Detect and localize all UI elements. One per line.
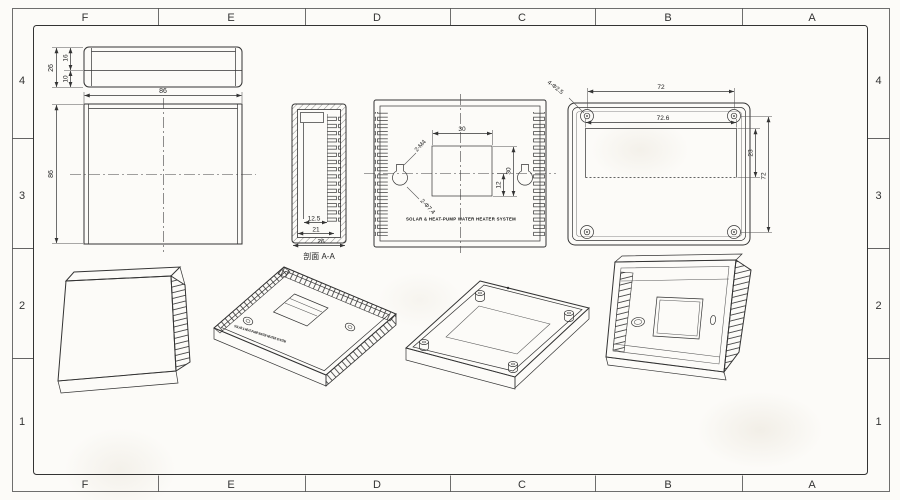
iso2-thickness-se [326,314,396,386]
iso1-vent-side [171,276,190,371]
grid-col-label: E [227,479,234,491]
dim-window-offset: 12 [496,181,503,189]
outer-border [13,9,890,492]
iso4-keyhole-inner [634,319,642,325]
grid-col-label: F [82,12,89,24]
grid-col-label: D [373,479,381,491]
grid-ticks-right [868,139,890,359]
iso1-bottom-skirt [58,371,178,393]
grid-ticks-top [159,9,743,26]
base-recess [586,129,737,178]
iso4-keyhole [631,317,645,328]
drawing-sheet: F E D C B A F E D C B A 4 3 2 1 4 3 2 1 … [0,0,900,500]
back-vent-fins-left [375,112,388,236]
grid-row-label: 3 [875,190,881,202]
grid-ticks-left [13,139,34,359]
grid-col-label: A [808,12,816,24]
iso-view-base-tray [406,281,589,389]
iso2-keyhole-right [344,322,356,333]
brand-text: SOLAR & HEAT-PUMP WATER HEATER SYSTEM [406,217,516,222]
base-view: 72 72.6 4-Φ2.5 23 72 [546,80,772,245]
dim-front-height: 86 [48,170,55,178]
grid-row-label: 1 [875,416,881,428]
grid-col-label: D [373,12,381,24]
iso4-bottom-skirt [606,357,726,380]
iso3-rim-pin [507,287,509,289]
back-vent-fins-right [532,112,545,236]
sheet-border: F E D C B A F E D C B A 4 3 2 1 4 3 2 1 [13,9,890,492]
iso2-window-recess [274,294,329,326]
dim-window-width: 30 [458,126,466,133]
section-view: 12.5 21 26 剖面 A-A [292,104,346,261]
iso2-rim [221,271,388,370]
iso2-brand-text: SOLAR & HEAT-PUMP WATER HEATER SYSTEM [234,324,287,344]
front-inner-lines [89,104,238,244]
iso4-vent-fins-left [613,272,633,352]
dim-profile-lower: 10 [63,75,70,83]
keyhole-slot-right [518,165,533,186]
grid-col-label: B [664,479,671,491]
grid-row-label: 4 [875,75,881,87]
section-vent-fins [327,114,341,222]
iso1-front-face [58,276,176,381]
profile-outline [84,47,242,87]
iso1-top-face [66,267,180,281]
profile-view: 26 16 10 [48,47,242,88]
dim-profile-upper: 16 [63,54,70,62]
dim-profile-total: 26 [48,64,55,72]
keyhole-slot-left [392,165,407,186]
iso2-vent-fins-nw [214,267,290,333]
grid-row-label: 2 [875,300,881,312]
grid-row-label: 2 [19,300,25,312]
section-label: 剖面 A-A [303,251,335,261]
front-view: 86 86 [48,88,256,252]
back-view: 30 12 30 2-M4 2-Φ7.4 SOLAR & HEAT-PUMP W… [364,94,556,253]
grid-col-label: B [664,12,671,24]
callout-hole: 2-Φ7.4 [419,198,436,216]
grid-row-label: 1 [19,416,25,428]
grid-col-label: F [82,479,89,491]
iso2-keyhole-left-inner [246,319,251,323]
grid-col-label: C [518,479,526,491]
dim-recess-height: 23 [748,149,755,157]
base-inner-wall [573,108,746,241]
dim-window-height: 30 [506,167,513,175]
iso2-keyhole-right-inner [348,325,353,329]
iso3-screw-boss [476,291,485,302]
iso-view-back-panel-standing [606,254,751,380]
grid-col-label: C [518,12,526,24]
iso-view-back-cover-flat: SOLAR & HEAT-PUMP WATER HEATER SYSTEM [214,267,396,386]
callout-mount-holes: 4-Φ2.5 [546,80,565,97]
iso4-window-cutout [653,297,703,339]
grid-ticks-bottom [159,476,743,492]
grid-row-label: 4 [19,75,25,87]
front-outline [84,104,242,244]
base-inner-wall-2 [577,112,742,237]
dim-recess-width: 72.6 [657,115,670,122]
profile-detail-lines [84,48,242,86]
iso3-recess-floor [446,306,550,354]
back-window-cutout [432,146,492,196]
iso4-side-slot [710,315,716,325]
dim-front-width: 86 [159,88,167,95]
drawing-canvas: F E D C B A F E D C B A 4 3 2 1 4 3 2 1 … [0,0,900,500]
dim-section-total: 26 [317,239,325,246]
iso4-window-inner [657,300,700,336]
base-outline [568,103,750,245]
iso3-screw-boss [565,311,574,322]
callout-screw: 2-M4 [414,139,428,154]
iso3-thickness-se [515,308,589,388]
dim-section-mid: 21 [312,227,320,234]
iso3-thickness-sw [406,348,515,389]
iso3-rim-inner [413,285,582,371]
dim-screw-span-v: 72 [761,172,768,180]
grid-col-label: A [808,479,816,491]
dim-section-inner: 12.5 [308,216,321,223]
grid-row-label: 3 [19,190,25,202]
iso2-keyhole-left [242,316,254,327]
grid-col-label: E [227,12,234,24]
dim-screw-span-h: 72 [657,84,665,91]
iso2-vent-fins-ne [278,267,396,321]
iso-view-closed-enclosure [58,267,190,393]
